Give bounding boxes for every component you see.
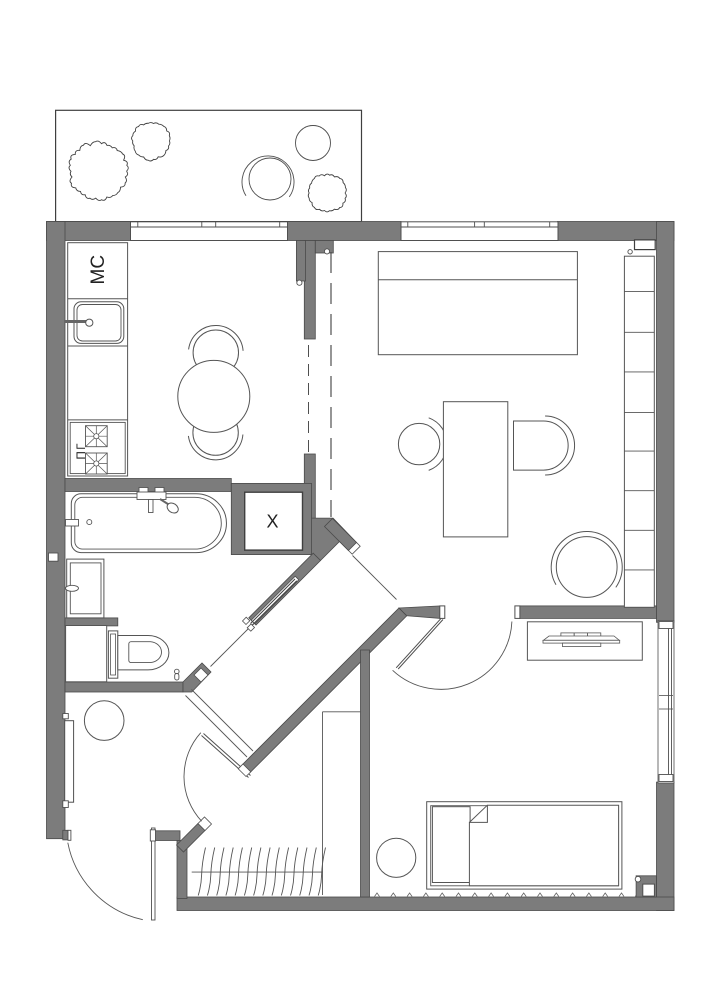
svg-text:ПГ: ПГ <box>76 442 88 460</box>
svg-text:МС: МС <box>88 255 109 285</box>
svg-text:X: X <box>266 512 278 532</box>
